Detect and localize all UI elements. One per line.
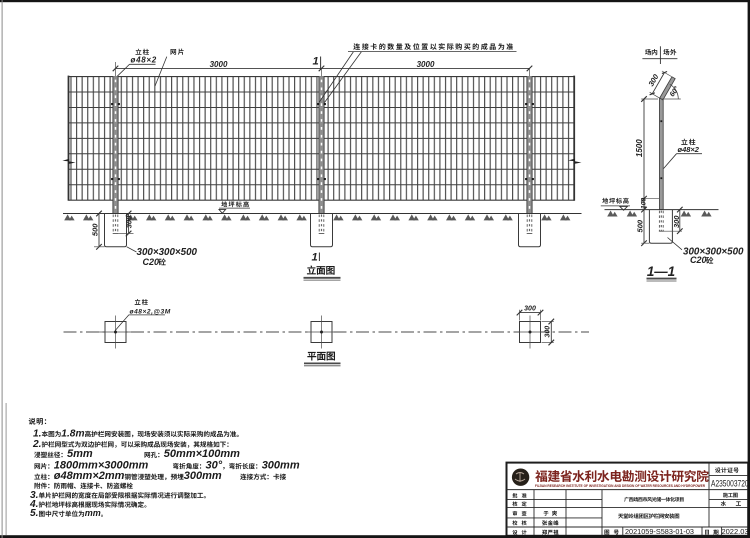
svg-text:500: 500 bbox=[635, 219, 644, 232]
svg-text:3000: 3000 bbox=[210, 60, 228, 69]
svg-text:A235003720: A235003720 bbox=[711, 478, 749, 488]
svg-text:C20: C20 bbox=[690, 255, 707, 265]
svg-text:50mm×100mm: 50mm×100mm bbox=[164, 448, 240, 460]
svg-text:1.8m: 1.8m bbox=[61, 428, 84, 439]
svg-text:300: 300 bbox=[646, 72, 660, 88]
svg-text:3000: 3000 bbox=[417, 60, 435, 69]
svg-text:500: 500 bbox=[90, 223, 99, 236]
svg-text:1.: 1. bbox=[33, 428, 42, 439]
svg-text:300mm: 300mm bbox=[262, 460, 300, 472]
svg-text:2.: 2. bbox=[32, 439, 42, 450]
svg-text:2021059-S583-01-03: 2021059-S583-01-03 bbox=[625, 527, 694, 536]
svg-text:1: 1 bbox=[312, 56, 318, 68]
svg-text:5mm: 5mm bbox=[67, 448, 93, 460]
svg-text:1500: 1500 bbox=[635, 139, 644, 157]
svg-text:1—1: 1—1 bbox=[647, 264, 675, 279]
svg-text:ø48×2: ø48×2 bbox=[678, 145, 700, 154]
svg-text:300: 300 bbox=[124, 215, 133, 228]
svg-text:2022.03: 2022.03 bbox=[721, 527, 748, 536]
svg-text:C20: C20 bbox=[143, 257, 160, 267]
svg-text:300: 300 bbox=[524, 305, 536, 312]
svg-text:ø48×2: ø48×2 bbox=[131, 56, 157, 65]
svg-text:300mm: 300mm bbox=[184, 470, 222, 482]
svg-text:100: 100 bbox=[640, 198, 647, 210]
svg-text:300: 300 bbox=[672, 215, 681, 228]
svg-text:FUJIAN RESEARCH INSTITUTE OF I: FUJIAN RESEARCH INSTITUTE OF INVESTIGATI… bbox=[535, 483, 705, 488]
svg-text:5.: 5. bbox=[30, 508, 39, 519]
svg-text:1: 1 bbox=[311, 252, 317, 264]
svg-text:300: 300 bbox=[544, 326, 551, 338]
svg-text:ø48mm×2mm: ø48mm×2mm bbox=[54, 470, 125, 482]
svg-text:mm: mm bbox=[85, 508, 101, 518]
